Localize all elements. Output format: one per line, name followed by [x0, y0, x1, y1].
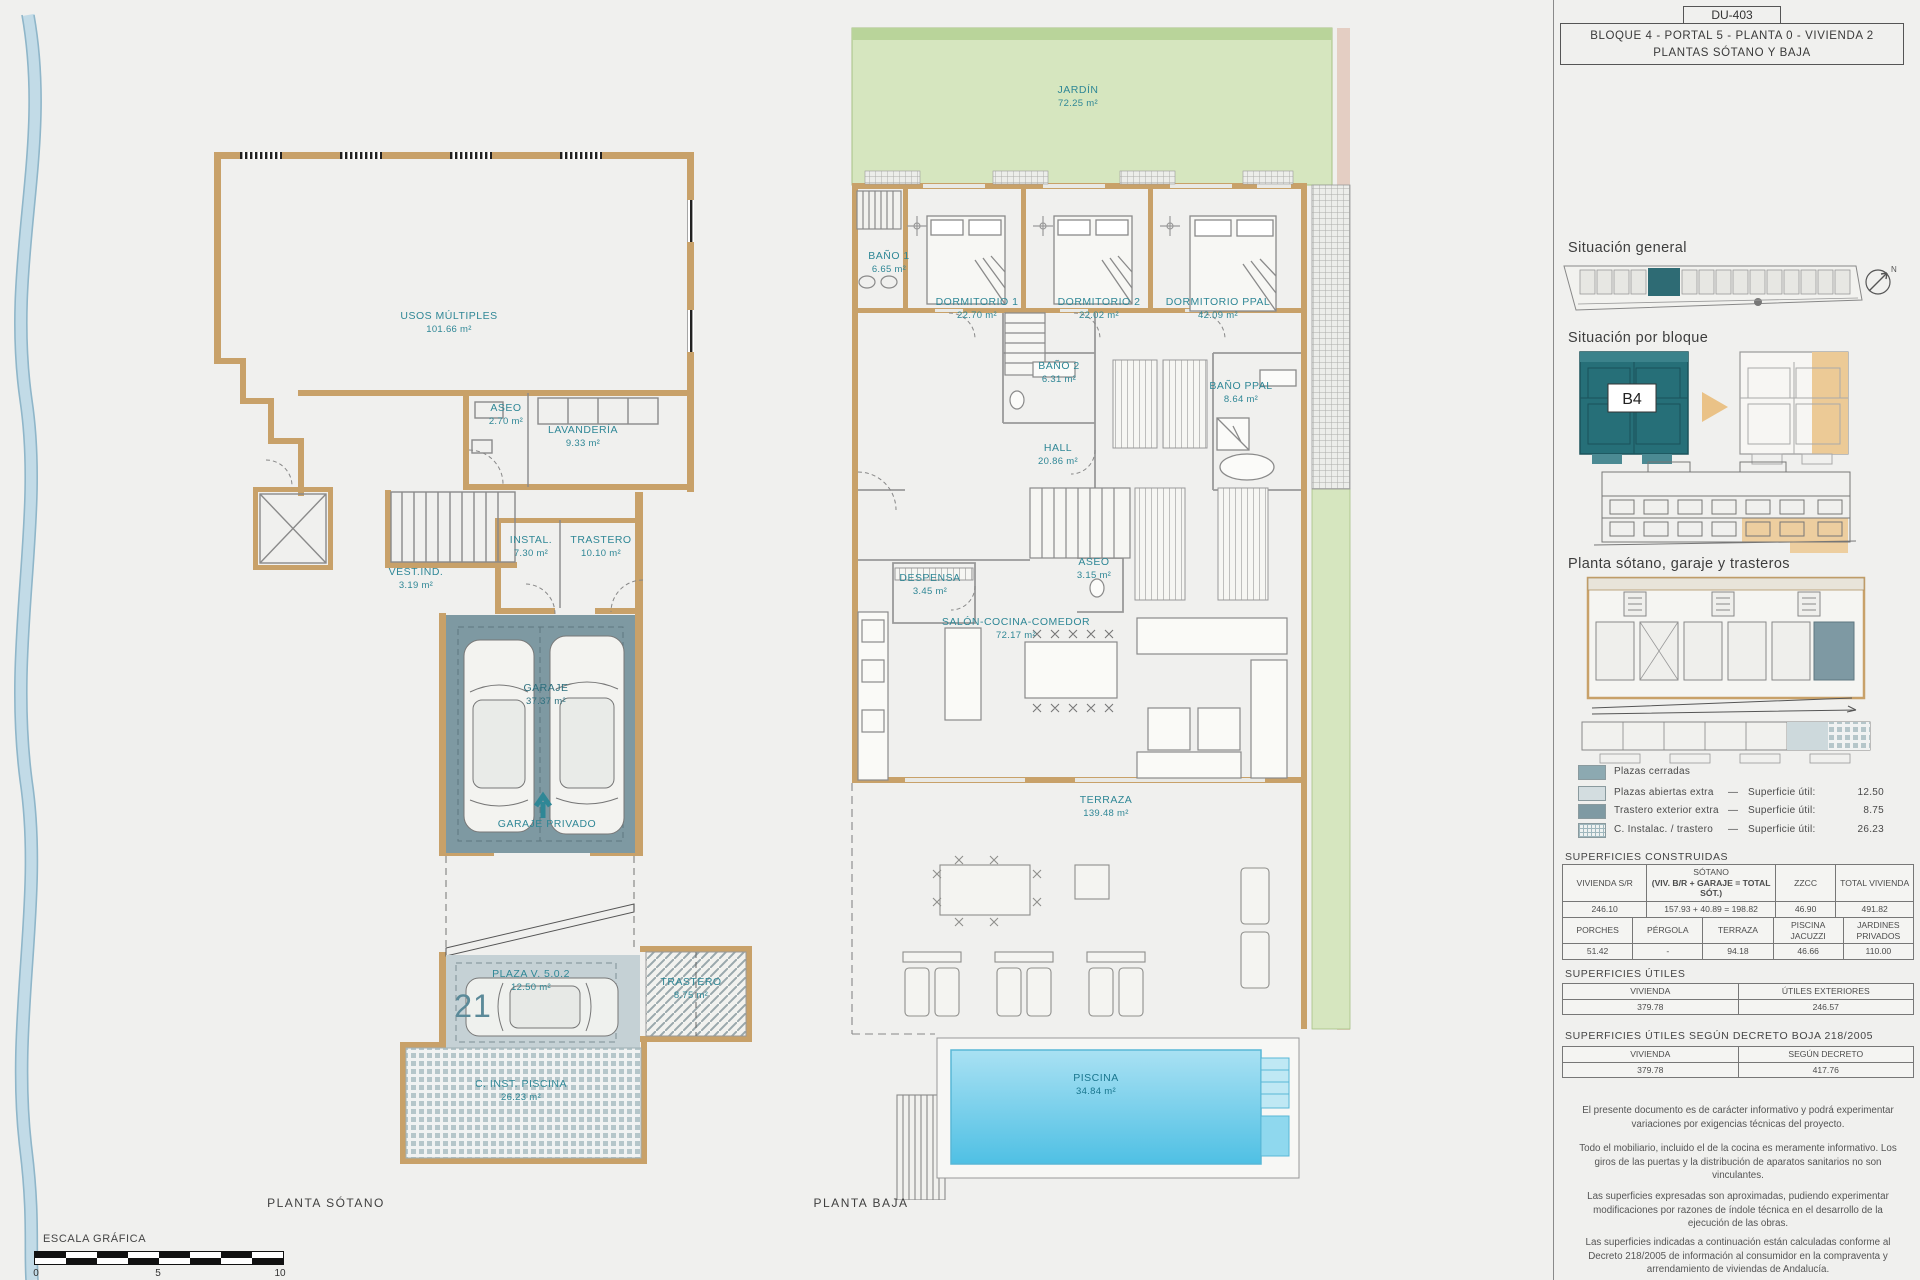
caption-planta-sotano: PLANTA SÓTANO [267, 1196, 385, 1210]
room-label-trastero-ext: TRASTERO8.75 m² [660, 976, 721, 1002]
note-paragraph-4: Las superficies indicadas a continuación… [1572, 1236, 1904, 1277]
legend-item-c-instalac: C. Instalac. / trastero — Superficie úti… [1578, 823, 1908, 839]
legend-swatch-c-instalac [1578, 823, 1606, 838]
block-highlight-plan [1740, 352, 1848, 464]
heading-planta-sotano-garaje: Planta sótano, garaje y trasteros [1568, 556, 1790, 572]
legend-swatch-plazas-cerradas [1578, 765, 1606, 780]
room-label-dormppal: DORMITORIO PPAL42.09 m² [1166, 296, 1271, 322]
note-paragraph-1: El presente documento es de carácter inf… [1572, 1104, 1904, 1131]
planta-baja-drawing [845, 20, 1365, 1200]
title-block: DU-403 BLOQUE 4 - PORTAL 5 - PLANTA 0 - … [1560, 6, 1904, 65]
sheet-title-line2: PLANTAS SÓTANO Y BAJA [1563, 45, 1901, 62]
legend-swatch-plazas-abiertas [1578, 786, 1606, 801]
note-paragraph-3: Las superficies expresadas son aproximad… [1572, 1190, 1904, 1231]
legend-swatch-trastero-exterior [1578, 804, 1606, 819]
elevation-diagram [1590, 452, 1880, 557]
heading-superficies-construidas: SUPERFICIES CONSTRUIDAS [1565, 851, 1728, 863]
label-garaje-privado: GARAJE PRIVADO [498, 818, 596, 832]
table-construidas-2: PORCHES PÉRGOLA TERRAZA PISCINA JACUZZI … [1562, 917, 1914, 960]
note-paragraph-2: Todo el mobiliario, incluido el de la co… [1572, 1142, 1904, 1183]
heading-situacion-bloque: Situación por bloque [1568, 330, 1708, 346]
caption-planta-baja: PLANTA BAJA [814, 1196, 909, 1210]
table-utiles-decreto: VIVIENDA SEGÚN DECRETO 379.78 417.76 [1562, 1046, 1914, 1078]
room-label-usos: USOS MÚLTIPLES101.66 m² [400, 310, 497, 336]
block-diagram: B4 [1572, 348, 1892, 468]
room-label-hall: HALL20.86 m² [1038, 442, 1078, 468]
sidebar-divider [1553, 0, 1554, 1280]
scale-label: ESCALA GRÁFICA [43, 1233, 146, 1245]
legend-item-plazas-cerradas: Plazas cerradas [1578, 765, 1908, 781]
room-label-aseo-baja: ASEO3.15 m² [1077, 556, 1111, 582]
scale-tick-10: 10 [274, 1268, 285, 1279]
plan-sheet: USOS MÚLTIPLES101.66 m² ASEO2.70 m² LAVA… [0, 0, 1920, 1280]
svg-text:N: N [1891, 265, 1897, 274]
sotano-door-arcs [266, 450, 643, 614]
plaza-number: 21 [454, 988, 492, 1025]
room-label-dorm2: DORMITORIO 222.02 m² [1058, 296, 1141, 322]
highlighted-block [1648, 268, 1680, 296]
room-label-instal: INSTAL.7.30 m² [510, 534, 552, 560]
scale-tick-0: 0 [33, 1268, 39, 1279]
room-label-salon: SALÓN-COCINA-COMEDOR72.17 m² [942, 616, 1090, 642]
graphic-scale-bar [34, 1251, 284, 1265]
table-construidas-1: VIVIENDA S/R SÓTANO (VIV. B/R + GARAJE =… [1562, 864, 1914, 918]
heading-superficies-utiles: SUPERFICIES ÚTILES [1565, 968, 1686, 980]
table-utiles: VIVIENDA ÚTILES EXTERIORES 379.78 246.57 [1562, 983, 1914, 1015]
room-label-piscina: PISCINA34.84 m² [1073, 1072, 1119, 1098]
compass-icon: N [1866, 265, 1897, 294]
room-label-vestind: VEST.IND.3.19 m² [389, 566, 444, 592]
baja-stairs [1005, 313, 1130, 558]
room-label-garaje: GARAJE37.37 m² [523, 682, 568, 708]
highlighted-trastero-light [1787, 722, 1828, 750]
terraza-furniture [903, 856, 1269, 1016]
sheet-title-line1: BLOQUE 4 - PORTAL 5 - PLANTA 0 - VIVIEND… [1563, 28, 1901, 45]
block-b4: B4 [1580, 352, 1688, 464]
heading-utiles-decreto: SUPERFICIES ÚTILES SEGÚN DECRETO BOJA 21… [1565, 1030, 1873, 1042]
pool [937, 1038, 1299, 1178]
scale-tick-5: 5 [155, 1268, 161, 1279]
legend-item-plazas-abiertas: Plazas abiertas extra — Superficie útil:… [1578, 786, 1908, 802]
arrow-right-icon [1702, 392, 1728, 422]
room-label-trastero-sotano: TRASTERO10.10 m² [570, 534, 631, 560]
room-label-bano2: BAÑO 26.31 m² [1038, 360, 1080, 386]
room-label-cinst: C. INST. PISCINA26.23 m² [475, 1078, 567, 1104]
block-b4-label: B4 [1622, 391, 1642, 408]
car-icon [550, 636, 624, 834]
room-label-jardin: JARDÍN72.25 m² [1058, 84, 1099, 110]
room-label-banoppal: BAÑO PPAL8.64 m² [1209, 380, 1272, 406]
car-icon [464, 640, 534, 832]
highlighted-trastero-hatch [1828, 722, 1870, 750]
coastline-ribbon [0, 0, 70, 1280]
room-label-dorm1: DORMITORIO 122.70 m² [936, 296, 1019, 322]
room-label-terraza: TERRAZA139.48 m² [1080, 794, 1133, 820]
room-label-despensa: DESPENSA3.45 m² [899, 572, 960, 598]
room-label-aseo-sotano: ASEO2.70 m² [489, 402, 523, 428]
room-label-bano1: BAÑO 16.65 m² [868, 250, 910, 276]
room-label-lavanderia: LAVANDERÍA9.33 m² [548, 424, 618, 450]
sheet-code: DU-403 [1683, 6, 1781, 24]
legend-item-trastero-exterior: Trastero exterior extra — Superficie úti… [1578, 804, 1908, 820]
heading-situacion-general: Situación general [1568, 240, 1687, 256]
site-strip-diagram: N [1558, 258, 1898, 324]
room-label-plaza: PLAZA V. 5.0.212.50 m² [492, 968, 570, 994]
basement-strip-diagram [1580, 574, 1880, 764]
highlighted-plaza [1814, 622, 1854, 680]
